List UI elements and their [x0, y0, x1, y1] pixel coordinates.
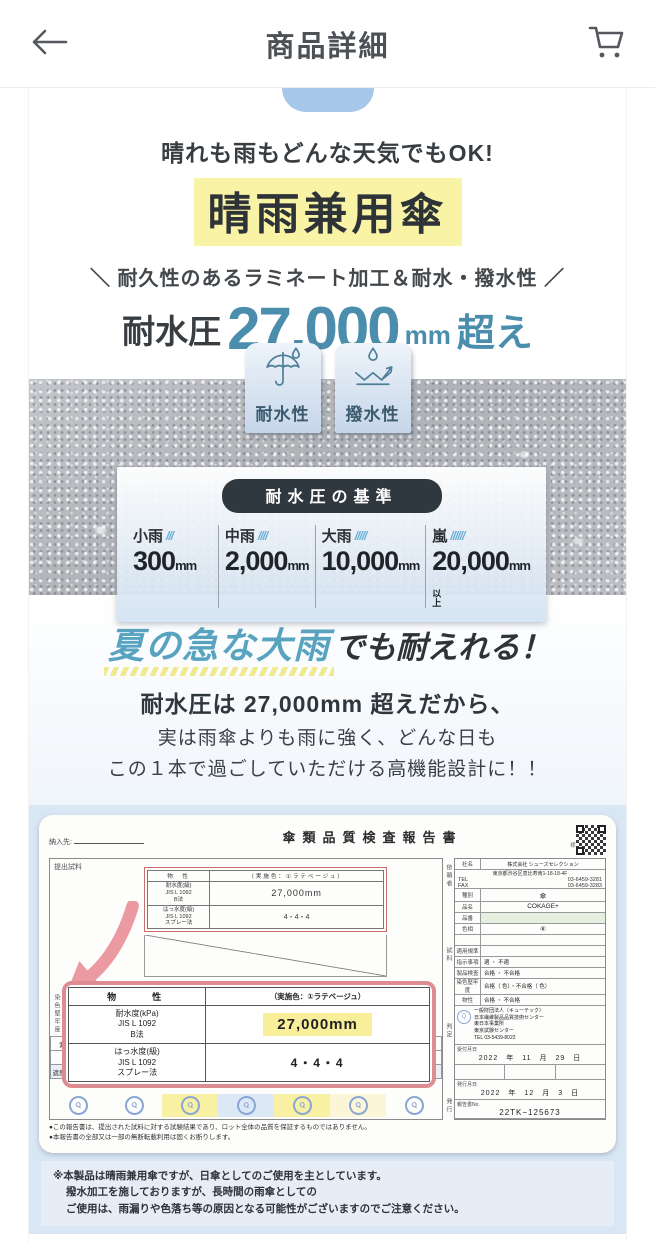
test-name: 耐水度(級) — [150, 883, 207, 890]
agency-line: 日本繊維製品品質技術センター — [474, 1015, 544, 1021]
cart-button[interactable] — [583, 21, 629, 67]
test-sub: スプレー法 — [150, 920, 207, 927]
inspection-report-section: 様式110号改2 納入先: 傘類品質検査報告書 提出試料 染色堅牢度 物 性 — [29, 805, 626, 1234]
agency-line: 東日本事業所 — [474, 1021, 504, 1027]
delivery-to: 納入先: — [49, 825, 169, 847]
disclaimer-line: ご使用は、雨漏りや色落ち等の原因となる可能性がございますのでご注意ください。 — [53, 1201, 602, 1217]
group-label: 試料 — [444, 947, 453, 963]
group-label: 依頼者 — [444, 864, 453, 888]
standard-levels: 小雨 /// 300mm 中雨 //// 2,000mm 大雨 ///// — [127, 525, 536, 608]
main-table-header-note: （実施色：①ラテベージュ） — [206, 988, 430, 1006]
agency-line: TEL 03-5439-8022 — [474, 1035, 516, 1041]
judgement-label: 製品検査 — [455, 968, 481, 978]
water-pressure-result: 27,000mm — [263, 1013, 372, 1036]
test-method: JIS L 1092 — [71, 1058, 203, 1068]
stamp-icon: Q — [290, 1094, 314, 1118]
hero-section: 晴れも雨もどんな天気でもOK! 晴雨兼用傘 ＼ 耐久性のあるラミネート加工＆耐水… — [29, 88, 626, 379]
highlighted-property-table: 物 性 （実施色：①ラテベージュ） 耐水度(kPa) JIS L 1092 B法… — [62, 981, 436, 1088]
report-no: 22TK−125673 — [457, 1108, 603, 1117]
level-unit: mm — [398, 558, 419, 573]
level-light-rain: 小雨 /// 300mm — [127, 525, 218, 608]
agency-line: 東京試験センター — [474, 1028, 514, 1034]
rain-marks-icon: ////// — [450, 529, 464, 543]
report-footnotes: ●この報告書は、提出された試料に対する試験結果であり、ロット全体の品質を保証する… — [49, 1123, 606, 1143]
feature-badges: 耐水性 撥水性 — [29, 343, 626, 433]
color-value: ⑥ — [481, 924, 605, 934]
report-sidebar: 社名株式会社 シューズセレクション 東京都渋谷区恵比寿南1-18-18-4F T… — [454, 858, 606, 1120]
summer-section: 夏の急な大雨でも耐えれる！ 耐水圧は 27,000mm 超えだから、 実は雨傘よ… — [29, 595, 626, 805]
headline-accent: 夏の急な大雨 — [104, 625, 334, 676]
disclaimer-line: 撥水加工を施しておりますが、長時間の雨傘としての — [53, 1184, 602, 1200]
agency-line: 一般財団法人（キューテック） — [474, 1008, 544, 1014]
footnote: ●本報告書の全部又は一部の無断転載利用は固くお断りします。 — [49, 1133, 606, 1143]
level-suffix: 以上 — [432, 590, 441, 608]
judgement-value: 合格（ 色）・不合格（ 色） — [481, 979, 605, 994]
badge-label: 撥水性 — [346, 400, 400, 425]
received-label: 受付月日 — [457, 1046, 603, 1053]
bottom-spacer — [29, 1234, 626, 1242]
judgement-value: 合格 ・ 不合格 — [481, 968, 605, 978]
judgement-label: 物性 — [455, 995, 481, 1005]
hero-tagline: 晴れも雨もどんな天気でもOK! — [29, 134, 626, 168]
sample-label: 提出試料 — [54, 862, 82, 872]
code-label: 品番 — [455, 913, 481, 923]
level-heavy-rain: 大雨 ///// 10,000mm — [315, 525, 426, 608]
mini-table-header: 物 性 — [148, 871, 210, 882]
cart-icon — [586, 23, 626, 64]
level-label: 小雨 — [133, 525, 163, 546]
stamp-icon: Q — [346, 1094, 370, 1118]
summer-line2: 実は雨傘よりも雨に強く、どんな日も — [29, 723, 626, 750]
level-unit: mm — [287, 558, 308, 573]
judgement-label: 指示事項 — [455, 957, 481, 967]
mini-property-table: 物 性 （実施色：①ラテベージュ） 耐水度(級) JIS L 1092 B法 2… — [144, 867, 387, 932]
rain-marks-icon: /// — [166, 529, 173, 543]
page-title: 商品詳細 — [265, 23, 389, 65]
agency-logo-icon: Q — [457, 1010, 471, 1024]
decorative-arc — [282, 88, 374, 112]
stamp-icon: Q — [66, 1094, 90, 1118]
water-repel-icon — [350, 345, 396, 400]
repellency-result: 4・4・4 — [206, 1044, 430, 1082]
stamp-icon: Q — [178, 1094, 202, 1118]
issued-label: 発行月日 — [457, 1081, 603, 1088]
testing-agency-block: Q 一般財団法人（キューテック） 日本繊維製品品質技術センター 東日本事業所 東… — [455, 1006, 605, 1045]
fax-number: 03-6459-3283 — [568, 883, 602, 889]
test-method: JIS L 1092 — [150, 890, 207, 897]
footnote: ●この報告書は、提出された試料に対する試験結果であり、ロット全体の品質を保証する… — [49, 1123, 606, 1133]
summer-line3: この１本で過ごしていただける高機能設計に！！ — [29, 754, 626, 781]
water-resistance-badge: 耐水性 — [245, 343, 321, 433]
level-medium-rain: 中雨 //// 2,000mm — [218, 525, 315, 608]
badge-label: 耐水性 — [256, 400, 310, 425]
fabric-photo-section: 耐水性 撥水性 耐水圧の基準 小雨 — [29, 379, 626, 595]
level-value: 10,000 — [322, 546, 399, 576]
received-date: 2022 年 11 月 29 日 — [457, 1053, 603, 1063]
report-title: 傘類品質検査報告書 — [169, 825, 576, 846]
report-no-label: 報告書No. — [457, 1101, 603, 1108]
test-name: はっ水度(級) — [71, 1047, 203, 1057]
report-no-row: 報告書No. 22TK−125673 — [455, 1100, 605, 1119]
app-header: 商品詳細 — [0, 0, 655, 88]
product-name-value: COKAGE+ — [481, 902, 605, 912]
back-button[interactable] — [26, 21, 72, 67]
test-name: 耐水度(kPa) — [71, 1009, 203, 1019]
headline-rest: でも耐えれる！ — [334, 630, 551, 665]
address: 東京都渋谷区恵比寿南1-18-18-4F — [455, 870, 605, 877]
company-name: 株式会社 シューズセレクション — [481, 859, 605, 869]
group-label: 発行 — [444, 1098, 453, 1114]
stamp-icon: Q — [122, 1094, 146, 1118]
code-value — [481, 913, 605, 923]
feature-line: ＼ 耐久性のあるラミネート加工＆耐水・撥水性 ／ — [29, 262, 626, 291]
qr-code — [576, 825, 606, 855]
color-label: 色相 — [455, 924, 481, 934]
test-name: はっ水度(級) — [150, 907, 207, 914]
standard-title: 耐水圧の基準 — [222, 479, 442, 513]
inspection-report-card: 様式110号改2 納入先: 傘類品質検査報告書 提出試料 染色堅牢度 物 性 — [39, 815, 616, 1153]
rain-marks-icon: //// — [258, 529, 267, 543]
kind-value: 傘 — [481, 889, 605, 900]
stamp-icon: Q — [402, 1094, 426, 1118]
level-label: 大雨 — [322, 525, 352, 546]
test-method: JIS L 1092 — [71, 1019, 203, 1029]
sidebar-group-labels: 依頼者 試料 判定 発行 — [443, 858, 454, 1120]
received-date-row: 受付月日 2022 年 11 月 29 日 — [455, 1045, 605, 1065]
judgement-value: 合格 ・ 不合格 — [481, 995, 605, 1005]
level-unit: mm — [175, 558, 196, 573]
summer-line1: 耐水圧は 27,000mm 超えだから、 — [29, 685, 626, 719]
stamp-icon: Q — [234, 1094, 258, 1118]
report-main-area: 提出試料 染色堅牢度 物 性 （実施色：①ラテベージュ） 耐水度(級) — [49, 858, 443, 1120]
level-value: 2,000 — [225, 546, 288, 576]
test-value: 27,000mm — [210, 882, 384, 906]
product-title: 晴雨兼用傘 — [194, 178, 462, 246]
mini-table-header-note: （実施色：①ラテベージュ） — [210, 871, 384, 882]
umbrella-icon — [260, 345, 306, 400]
summer-headline: 夏の急な大雨でも耐えれる！ — [29, 617, 626, 669]
rain-marks-icon: ///// — [355, 529, 367, 543]
blank-cells — [455, 1065, 605, 1080]
address-block: 東京都渋谷区恵比寿南1-18-18-4F TEL03-6459-3281 FAX… — [455, 870, 605, 889]
level-unit: mm — [509, 558, 530, 573]
product-detail-image: 晴れも雨もどんな天気でもOK! 晴雨兼用傘 ＼ 耐久性のあるラミネート加工＆耐水… — [28, 88, 627, 1242]
disclaimer-line: ※本製品は晴雨兼用傘ですが、日傘としてのご使用を主としています。 — [53, 1168, 602, 1184]
level-value: 300 — [133, 546, 175, 576]
diagonal-strike-area — [144, 935, 387, 977]
judgement-value: 適 ・ 不適 — [481, 957, 605, 967]
level-storm: 嵐 ////// 20,000mm以上 — [425, 525, 536, 608]
test-sub: B法 — [71, 1030, 203, 1040]
disclaimer-block: ※本製品は晴雨兼用傘ですが、日傘としてのご使用を主としています。 撥水加工を施し… — [41, 1161, 614, 1226]
level-label: 中雨 — [225, 525, 255, 546]
fax-label: FAX — [458, 883, 468, 889]
issued-date: 2022 年 12 月 3 日 — [457, 1088, 603, 1098]
stamp-row: Q Q Q Q Q Q Q — [50, 1094, 442, 1117]
standard-label: 適用規準 — [455, 946, 481, 956]
water-pressure-standard-panel: 耐水圧の基準 小雨 /// 300mm 中雨 //// 2,000mm — [117, 467, 546, 622]
issued-date-row: 発行月日 2022 年 12 月 3 日 — [455, 1080, 605, 1100]
product-label: 品名 — [455, 902, 481, 912]
level-value: 20,000 — [432, 546, 509, 576]
judgement-label: 染色堅牢度 — [455, 979, 481, 994]
test-value: 4・4・4 — [210, 905, 384, 929]
test-sub: スプレー法 — [71, 1068, 203, 1078]
kind-label: 種別 — [455, 889, 481, 900]
level-label: 嵐 — [432, 525, 447, 546]
group-label: 判定 — [444, 1023, 453, 1039]
water-repellency-badge: 撥水性 — [335, 343, 411, 433]
test-sub: B法 — [150, 897, 207, 904]
company-label: 社名 — [455, 859, 481, 869]
main-table-header: 物 性 — [69, 988, 206, 1006]
back-arrow-icon — [30, 26, 68, 61]
